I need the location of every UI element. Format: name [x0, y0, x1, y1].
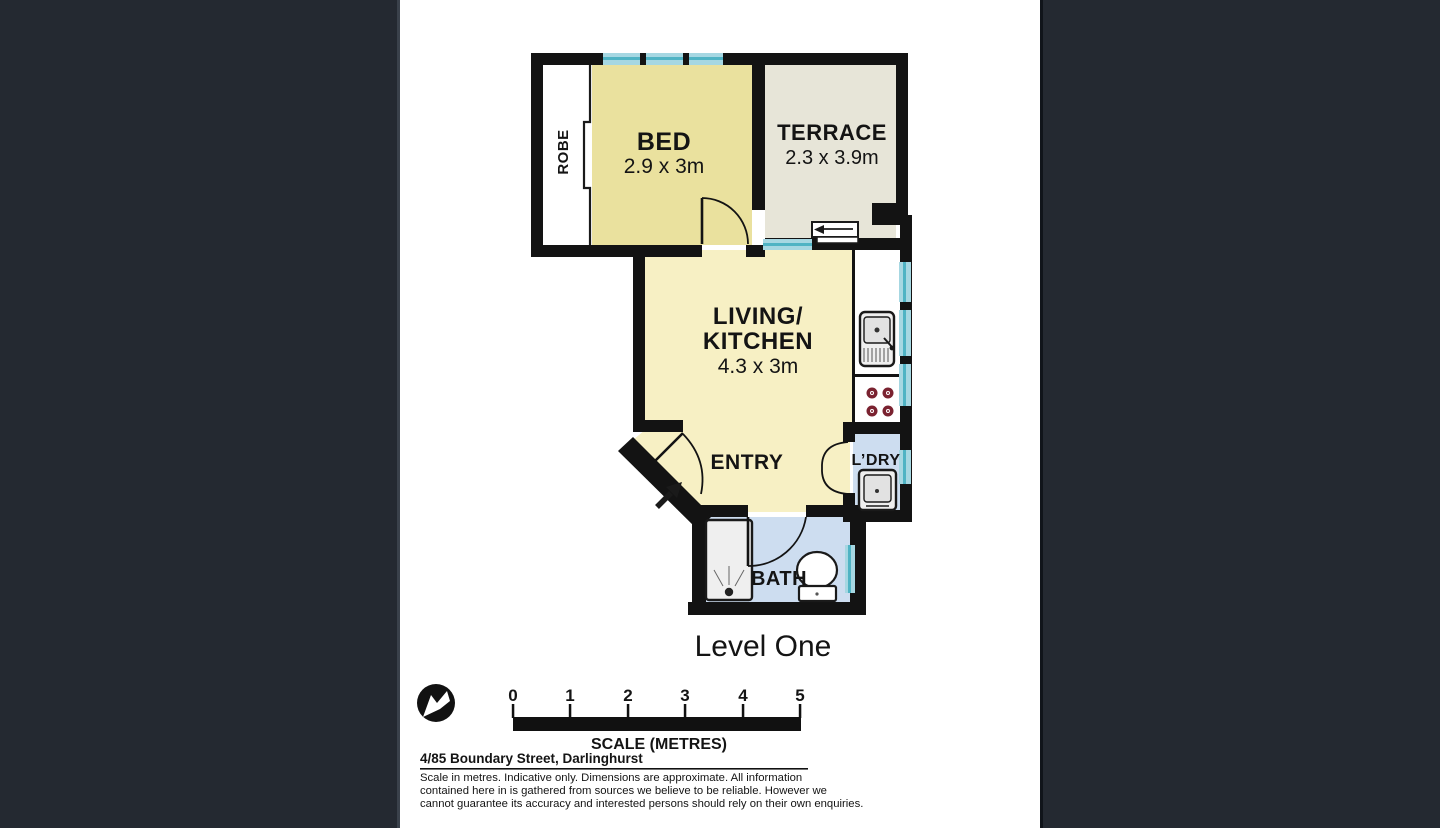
scale-tick-4: 4	[738, 686, 748, 705]
scale-tick-5: 5	[795, 686, 804, 705]
laundry-label: L’DRY	[851, 452, 900, 469]
scale-tick-3: 3	[680, 686, 689, 705]
entry-label: ENTRY	[711, 451, 784, 474]
address: 4/85 Boundary Street, Darlinghurst	[420, 751, 643, 766]
robe-label: ROBE	[555, 129, 572, 174]
living-dims: 4.3 x 3m	[718, 355, 799, 378]
bath-label: BATH	[751, 568, 807, 590]
disclaimer-line: Scale in metres. Indicative only. Dimens…	[420, 772, 802, 784]
disclaimer-line: contained here in is gathered from sourc…	[420, 785, 827, 797]
scale-bar: 0 1 2 3 4 5 SCALE (METRES)	[508, 686, 804, 753]
terrace-dims: 2.3 x 3.9m	[785, 147, 878, 169]
kitchen-sink	[860, 312, 894, 366]
window	[899, 364, 911, 406]
scale-bar-rule	[513, 717, 801, 731]
living-label-line1: LIVING/	[713, 303, 803, 330]
window	[763, 239, 812, 250]
footer: 4/85 Boundary Street, Darlinghurst Scale…	[420, 751, 863, 810]
terrace-label: TERRACE	[777, 120, 887, 145]
window	[603, 53, 640, 65]
scale-tick-0: 0	[508, 686, 517, 705]
shower	[706, 520, 752, 600]
floorplan-canvas: ROBE BED 2.9 x 3m TERRACE 2.3 x 3.9m LIV…	[400, 0, 1040, 828]
window	[899, 450, 911, 484]
window	[899, 310, 911, 356]
bed-dims: 2.9 x 3m	[624, 155, 705, 178]
window	[646, 53, 683, 65]
disclaimer-line: cannot guarantee its accuracy and intere…	[420, 798, 863, 810]
laundry-tub	[859, 470, 896, 510]
level-label: Level One	[695, 630, 832, 663]
scale-tick-2: 2	[623, 686, 632, 705]
window	[845, 545, 855, 593]
footer-divider	[420, 768, 808, 770]
terrace-step	[812, 222, 858, 243]
window	[689, 53, 723, 65]
window	[899, 262, 911, 302]
living-label-line2: KITCHEN	[703, 328, 813, 355]
scale-tick-1: 1	[565, 686, 574, 705]
bed-label: BED	[637, 128, 691, 156]
floorplan-diagram: ROBE BED 2.9 x 3m TERRACE 2.3 x 3.9m LIV…	[400, 0, 1040, 828]
north-arrow-icon	[417, 684, 455, 722]
